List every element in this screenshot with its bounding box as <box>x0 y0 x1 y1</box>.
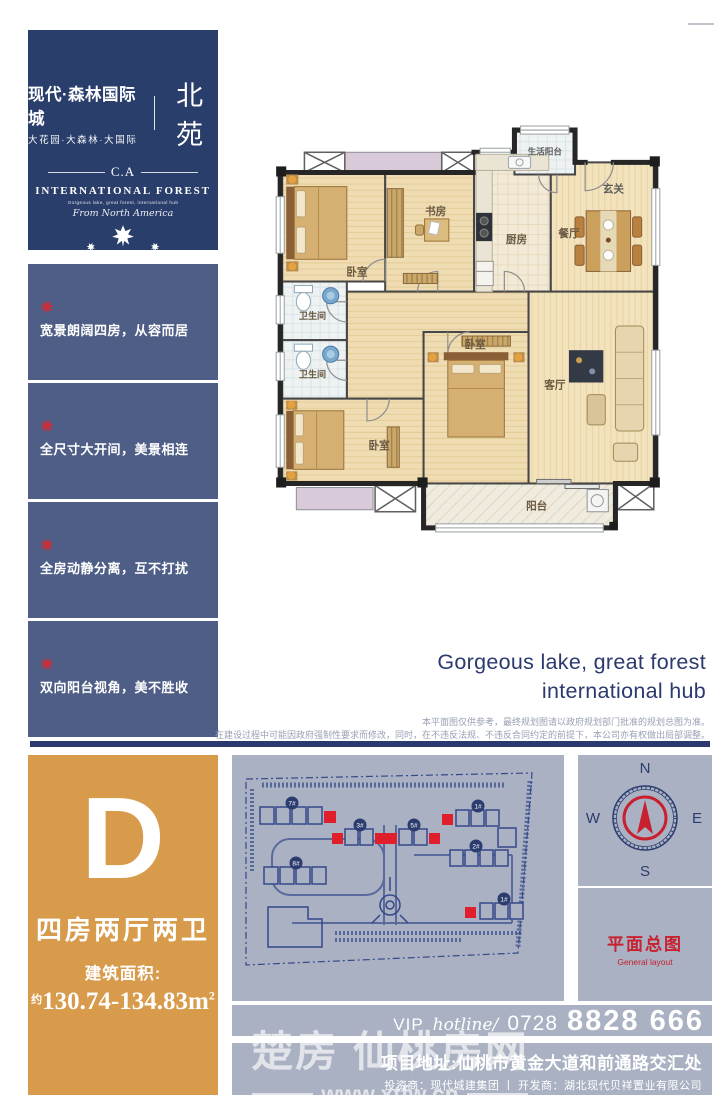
compass-panel: N W E S 平面总图 General layout <box>578 755 712 1001</box>
room-label-service-balcony: 生活阳台 <box>528 145 563 156</box>
room-label-bath-2: 卫生间 <box>299 368 326 379</box>
compass: N W E S <box>578 755 712 888</box>
feature-text: 全房动静分离，互不打扰 <box>40 558 208 577</box>
red-leaf-icon <box>40 419 54 433</box>
unit-area-value: 约130.74-134.83m2 <box>28 988 218 1016</box>
brand-name-tag: 北苑 <box>163 74 218 152</box>
hotline-prefix: 0728 <box>507 1012 558 1036</box>
building-badge: 1# <box>474 804 482 811</box>
brand-monogram-row: C.A <box>48 164 198 180</box>
unit-type-letter: D <box>28 769 218 908</box>
floorplan-drawing: 卧室 书房 厨房 餐厅 玄关 生活阳台 卫生间 卫生间 卧室 卧室 客厅 阳台 <box>266 124 670 538</box>
compass-e: E <box>692 810 702 827</box>
brand-logo-panel: 现代·森林国际城 大花园·大森林·大国际 北苑 C.A INTERNATIONA… <box>28 30 218 250</box>
disclaimer-line-1: 本平面图仅供参考，最终规划图请以政府规划部门批准的规划总图为准。 <box>210 716 710 729</box>
project-address: 项目地址:仙桃市黄金大道和前通路交汇处 <box>232 1049 702 1074</box>
trim-mark <box>688 23 714 25</box>
unit-type-panel: D 四房两厅两卫 建筑面积: 约130.74-134.83m2 <box>28 755 218 1095</box>
room-label-study: 书房 <box>425 205 446 218</box>
room-label-kitchen: 厨房 <box>506 233 527 246</box>
brand-title: 现代·森林国际城 <box>28 81 146 129</box>
compass-s: S <box>640 863 650 880</box>
room-label-bath-1: 卫生间 <box>299 310 326 321</box>
headline-line-1: Gorgeous lake, great forest <box>306 648 706 677</box>
feature-box-2: 全尺寸大开间，美景相连 <box>28 383 218 499</box>
room-label-bedroom-2: 卧室 <box>369 439 391 452</box>
floorplan-figure: 卧室 书房 厨房 餐厅 玄关 生活阳台 卫生间 卫生间 卧室 卧室 客厅 阳台 <box>266 124 670 538</box>
red-leaf-icon <box>40 538 54 552</box>
room-label-balcony: 阳台 <box>526 500 548 513</box>
brand-en-title: INTERNATIONAL FOREST <box>28 185 218 197</box>
developer-credits: 投资商：现代城建集团 丨 开发商：湖北现代贝祥置业有限公司 <box>232 1077 702 1093</box>
siteplan-drawing: 7# 3# 5# 1# 2# 8# 1# <box>232 755 564 1001</box>
feature-text: 宽景朗阔四房，从容而居 <box>40 320 208 339</box>
building-badge: 7# <box>288 801 296 808</box>
building-badge: 8# <box>292 861 300 868</box>
vip-hotline-strip: VIP hotline/ 0728 8828 666 <box>232 1005 712 1036</box>
unit-area-label: 建筑面积: <box>28 960 218 984</box>
english-headline: Gorgeous lake, great forest internationa… <box>306 648 706 706</box>
feature-box-4: 双向阳台视角，美不胜收 <box>28 621 218 737</box>
compass-n: N <box>640 760 651 777</box>
building-badge: 5# <box>410 823 418 830</box>
brand-en-tagline: Gorgeous lake, great forest, internation… <box>28 200 218 205</box>
hotline-script-label: hotline/ <box>433 1015 499 1035</box>
feature-text: 双向阳台视角，美不胜收 <box>40 677 208 696</box>
disclaimer: 本平面图仅供参考，最终规划图请以政府规划部门批准的规划总图为准。 在建设过程中可… <box>210 716 710 742</box>
room-label-bedroom-1: 卧室 <box>346 265 368 278</box>
building-badge: 3# <box>356 823 364 830</box>
hotline-vip-label: VIP <box>393 1015 423 1035</box>
headline-line-2: international hub <box>306 677 706 706</box>
red-leaf-icon <box>40 300 54 314</box>
real-estate-poster: 现代·森林国际城 大花园·大森林·大国际 北苑 C.A INTERNATIONA… <box>0 0 720 1115</box>
layout-caption-title: 平面总图 <box>578 930 712 955</box>
room-label-dining: 餐厅 <box>557 227 580 240</box>
layout-caption: 平面总图 General layout <box>578 888 712 967</box>
unit-layout-text: 四房两厅两卫 <box>28 910 218 947</box>
siteplan-panel: 7# 3# 5# 1# 2# 8# 1# <box>232 755 564 1001</box>
compass-icon: N W E S <box>578 755 712 883</box>
building-badge: 2# <box>472 844 480 851</box>
room-label-foyer: 玄关 <box>603 183 625 196</box>
brand-script-line: From North America <box>28 208 218 219</box>
building-badge: 1# <box>500 897 508 904</box>
layout-caption-subtitle: General layout <box>578 957 712 967</box>
compass-w: W <box>586 810 601 827</box>
room-label-bedroom-3: 卧室 <box>464 338 486 351</box>
red-leaf-icon <box>40 657 54 671</box>
brand-divider <box>154 96 155 130</box>
room-label-living: 客厅 <box>543 379 566 392</box>
section-divider-bar <box>30 741 710 747</box>
maple-leaf-ornament-icon <box>73 223 173 265</box>
brand-subtitle: 大花园·大森林·大国际 <box>28 132 146 146</box>
feature-text: 全尺寸大开间，美景相连 <box>40 439 208 458</box>
feature-box-1: 宽景朗阔四房，从容而居 <box>28 264 218 380</box>
brand-monogram: C.A <box>111 164 135 180</box>
hotline-number: 8828 666 <box>567 1005 704 1038</box>
footer-address-bar: 项目地址:仙桃市黄金大道和前通路交汇处 投资商：现代城建集团 丨 开发商：湖北现… <box>232 1043 712 1095</box>
feature-box-3: 全房动静分离，互不打扰 <box>28 502 218 618</box>
